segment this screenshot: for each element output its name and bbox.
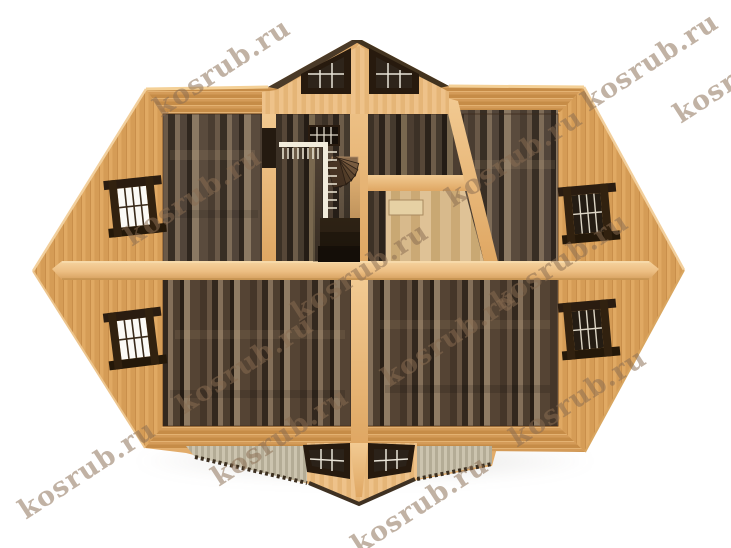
closet-stub-wall bbox=[368, 175, 468, 191]
room-top-left-floor bbox=[163, 114, 262, 262]
center-wall-bottom bbox=[351, 280, 368, 444]
top-dormer bbox=[262, 40, 449, 114]
dormer-window-top-right bbox=[369, 48, 419, 94]
stair-hall-left-wall bbox=[262, 107, 276, 262]
room-bottom-left-floor bbox=[163, 280, 352, 426]
middle-wall bbox=[52, 261, 659, 280]
floor-hatch bbox=[389, 200, 423, 215]
porch-roof-left bbox=[186, 446, 307, 483]
render-canvas: kosrub.rukosrub.rukosrub.rukosrub.rukosr… bbox=[0, 0, 731, 548]
house-attic-plan-render bbox=[0, 0, 731, 548]
stair-hall-doorway bbox=[262, 128, 276, 168]
staircase bbox=[313, 157, 360, 262]
room-bottom-right-floor bbox=[368, 280, 558, 426]
porch-roof-right bbox=[417, 446, 492, 479]
bottom-dormer bbox=[303, 443, 417, 504]
